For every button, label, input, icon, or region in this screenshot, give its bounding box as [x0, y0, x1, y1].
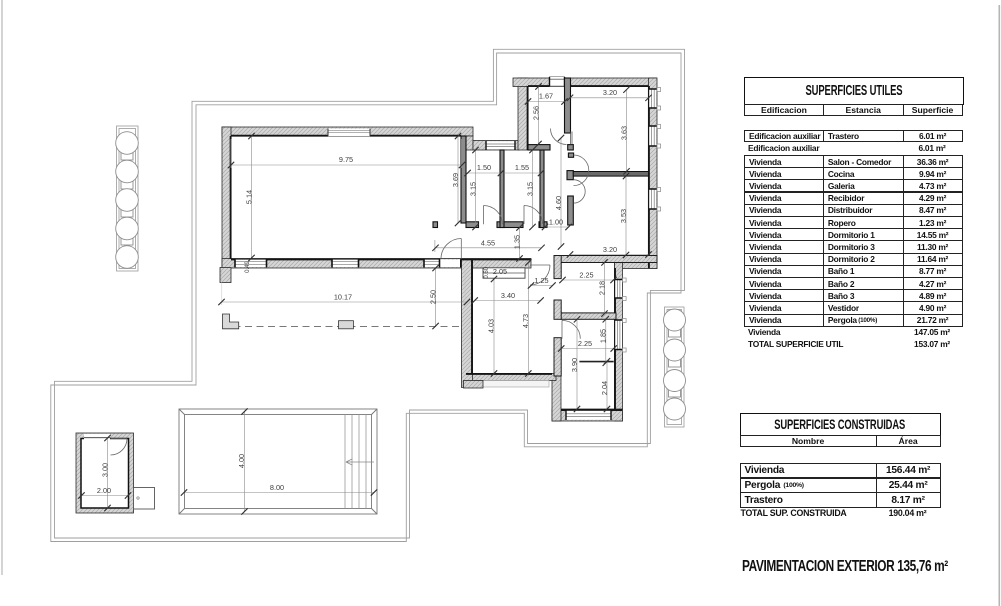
svg-text:10.17: 10.17 — [334, 293, 352, 302]
svg-text:1.25: 1.25 — [534, 276, 548, 285]
svg-text:2.56: 2.56 — [532, 106, 541, 120]
svg-text:3.20: 3.20 — [603, 88, 617, 97]
svg-text:1.55: 1.55 — [515, 163, 529, 172]
svg-text:4.00: 4.00 — [237, 454, 246, 468]
svg-text:0.49: 0.49 — [245, 261, 251, 273]
svg-text:4.73: 4.73 — [521, 314, 530, 328]
svg-text:2.18: 2.18 — [598, 281, 607, 295]
svg-text:3.53: 3.53 — [619, 209, 628, 223]
svg-text:1.00: 1.00 — [549, 218, 563, 227]
svg-text:3.90: 3.90 — [570, 358, 579, 372]
svg-text:3.20: 3.20 — [603, 245, 617, 254]
svg-text:3.15: 3.15 — [469, 182, 478, 196]
svg-text:4.03: 4.03 — [487, 319, 496, 333]
svg-text:2.50: 2.50 — [429, 290, 438, 304]
svg-text:3.69: 3.69 — [451, 173, 460, 187]
svg-text:3.00: 3.00 — [101, 463, 110, 477]
svg-text:3.40: 3.40 — [501, 291, 515, 300]
svg-text:8.00: 8.00 — [270, 483, 284, 492]
svg-text:2.00: 2.00 — [97, 486, 111, 495]
svg-text:1.50: 1.50 — [477, 163, 491, 172]
svg-text:1.67: 1.67 — [539, 92, 553, 101]
svg-text:3.15: 3.15 — [526, 182, 535, 196]
svg-text:4.55: 4.55 — [481, 238, 495, 247]
svg-text:5.14: 5.14 — [245, 190, 254, 204]
svg-text:0.60: 0.60 — [484, 266, 490, 278]
svg-text:9.75: 9.75 — [339, 155, 353, 164]
svg-text:2.25: 2.25 — [578, 339, 592, 348]
svg-text:2.05: 2.05 — [493, 267, 507, 276]
svg-text:2.04: 2.04 — [600, 381, 609, 395]
svg-text:1.85: 1.85 — [599, 329, 608, 343]
svg-text:2.25: 2.25 — [579, 271, 593, 280]
svg-text:3.63: 3.63 — [620, 126, 629, 140]
svg-text:1.35: 1.35 — [513, 235, 522, 249]
svg-text:4.60: 4.60 — [554, 196, 563, 210]
